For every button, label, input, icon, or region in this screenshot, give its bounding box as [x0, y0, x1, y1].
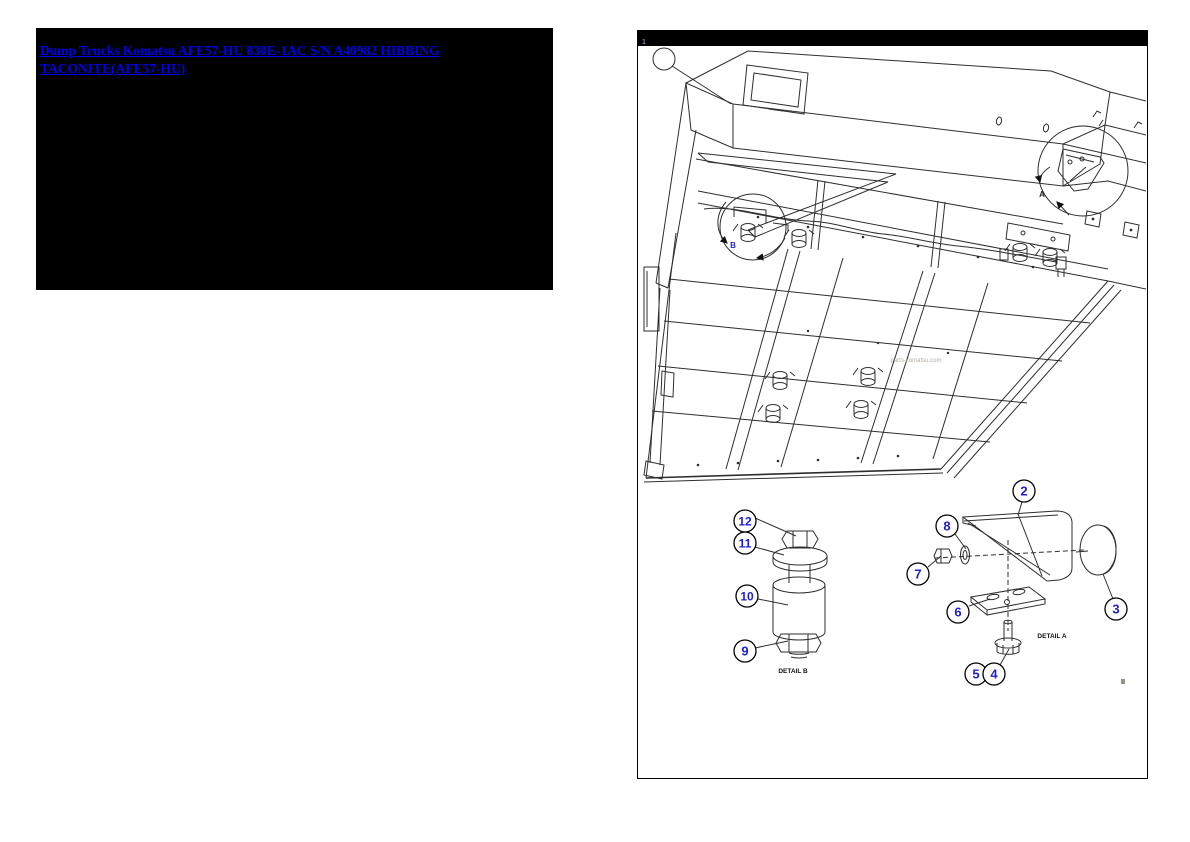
detail-b-view: DETAIL B 12 11 10 9: [734, 510, 827, 675]
svg-text:3: 3: [1112, 602, 1119, 617]
balloon-11[interactable]: 11: [734, 532, 756, 554]
parts-diagram-panel: 1: [637, 30, 1148, 779]
header-link-panel: Dump Trucks Komatsu AFE57-HU 830E-1AC S/…: [36, 28, 553, 290]
svg-text:8: 8: [943, 519, 950, 534]
balloon-6[interactable]: 6: [947, 601, 969, 623]
balloon-4[interactable]: 4: [983, 663, 1005, 685]
balloon-10[interactable]: 10: [736, 585, 758, 607]
balloon-3[interactable]: 3: [1105, 598, 1127, 620]
parts-diagram: 1: [638, 31, 1147, 778]
balloon-12[interactable]: 12: [734, 510, 756, 532]
svg-text:7: 7: [914, 567, 921, 582]
page-mark: [1121, 679, 1125, 684]
balloon-8[interactable]: 8: [936, 515, 958, 537]
svg-text:4: 4: [990, 667, 998, 682]
balloon-9[interactable]: 9: [734, 640, 756, 662]
detail-a-view: DETAIL A 2 8 7 6 3 5 4: [907, 480, 1127, 685]
detail-b-marker: B: [718, 194, 786, 260]
watermark: parts-komatsu.com: [890, 358, 941, 364]
detail-a-letter: A: [1039, 190, 1045, 199]
svg-text:10: 10: [740, 590, 754, 604]
detail-a-caption: DETAIL A: [1037, 633, 1066, 640]
truck-body-drawing: [644, 51, 1146, 482]
svg-text:6: 6: [954, 605, 961, 620]
corner-index: 1: [642, 39, 646, 46]
svg-text:11: 11: [739, 537, 752, 551]
balloon-7[interactable]: 7: [907, 563, 929, 585]
svg-text:2: 2: [1020, 484, 1027, 499]
figure-callout-circle: [653, 48, 731, 104]
balloon-2[interactable]: 2: [1013, 480, 1035, 502]
svg-text:12: 12: [738, 515, 752, 529]
detail-b-letter: B: [730, 241, 736, 250]
detail-b-caption: DETAIL B: [778, 668, 808, 675]
svg-text:5: 5: [972, 667, 979, 682]
svg-text:9: 9: [741, 644, 748, 659]
model-link[interactable]: Dump Trucks Komatsu AFE57-HU 830E-1AC S/…: [40, 43, 440, 76]
detail-a-marker: A: [1038, 126, 1128, 216]
